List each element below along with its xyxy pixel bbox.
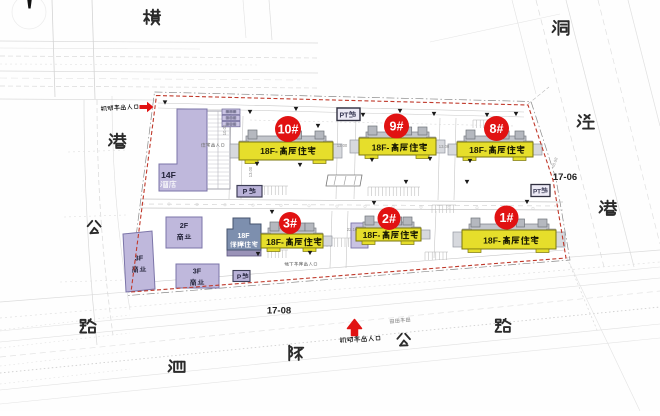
svg-text:18F-: 18F- <box>260 146 278 156</box>
svg-text:17-06: 17-06 <box>553 172 577 183</box>
svg-text:PT: PT <box>340 113 350 120</box>
svg-text:18F: 18F <box>237 233 250 240</box>
svg-text:22.10: 22.10 <box>347 227 358 232</box>
svg-text:3#: 3# <box>283 216 297 230</box>
svg-text:2#: 2# <box>382 212 396 226</box>
svg-text:P: P <box>243 189 248 196</box>
svg-text:18F-: 18F- <box>266 237 284 247</box>
svg-text:2F: 2F <box>180 221 189 230</box>
svg-text:18F-: 18F- <box>363 230 381 240</box>
svg-text:8#: 8# <box>490 122 504 136</box>
svg-text:13.00: 13.00 <box>248 166 253 177</box>
svg-text:10.00: 10.00 <box>222 124 227 135</box>
svg-text:14F: 14F <box>161 170 176 180</box>
svg-text:18F-: 18F- <box>469 145 487 155</box>
svg-text:18F-: 18F- <box>372 143 390 153</box>
svg-text:13.00: 13.00 <box>439 144 450 149</box>
svg-text:PT: PT <box>533 189 541 196</box>
svg-text:1#: 1# <box>500 211 514 225</box>
svg-text:P: P <box>237 274 242 281</box>
svg-text:18F-: 18F- <box>483 236 501 246</box>
svg-text:3F: 3F <box>193 267 202 276</box>
svg-text:13.00: 13.00 <box>337 143 348 148</box>
svg-text:10#: 10# <box>278 122 299 136</box>
svg-text:17-08: 17-08 <box>267 306 291 317</box>
svg-text:9#: 9# <box>390 119 404 133</box>
